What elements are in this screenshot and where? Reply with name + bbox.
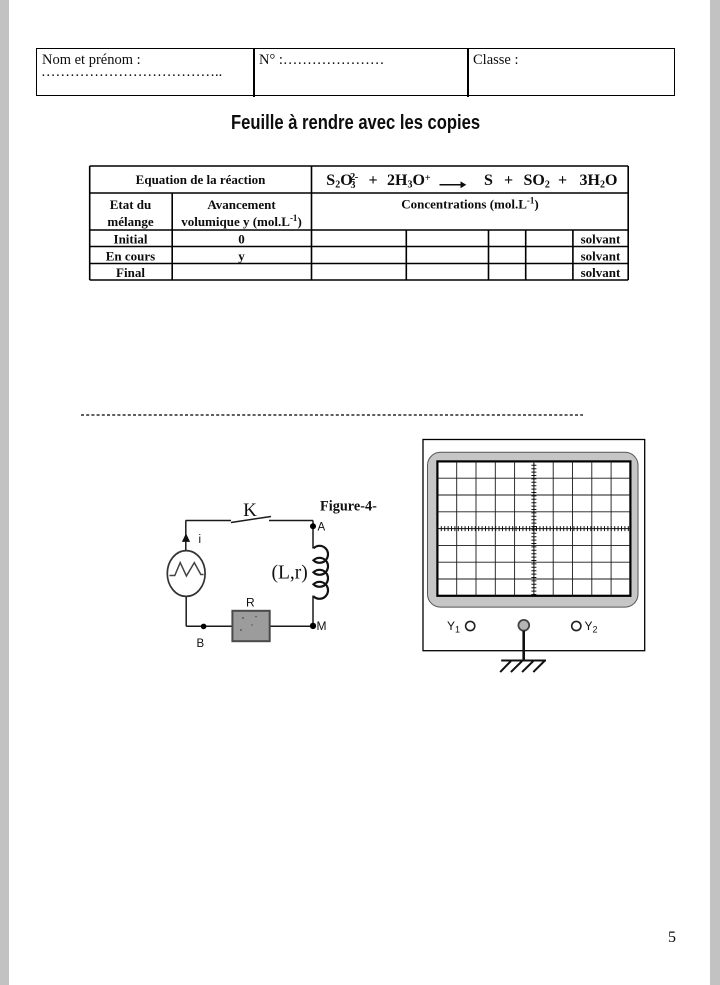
- svg-text:i: i: [199, 534, 202, 546]
- svg-text:solvant: solvant: [581, 232, 621, 247]
- svg-text:K: K: [243, 500, 257, 521]
- svg-text:R: R: [246, 596, 255, 610]
- svg-text:y: y: [238, 249, 245, 264]
- svg-text:Avancement: Avancement: [207, 197, 276, 212]
- svg-text:(L,r): (L,r): [272, 563, 308, 584]
- svg-text:Initial: Initial: [114, 232, 148, 247]
- svg-text:Concentrations (mol.L-1): Concentrations (mol.L-1): [401, 196, 539, 212]
- svg-text:En cours: En cours: [106, 249, 155, 264]
- svg-text:A: A: [318, 522, 326, 534]
- svg-text:solvant: solvant: [581, 265, 621, 280]
- svg-text:Equation de la réaction: Equation de la réaction: [136, 172, 266, 187]
- svg-text:volumique y (mol.L-1): volumique y (mol.L-1): [181, 213, 302, 229]
- svg-text:mélange: mélange: [107, 214, 153, 229]
- svg-text:0: 0: [238, 232, 245, 247]
- svg-text:Figure-4-: Figure-4-: [320, 499, 377, 515]
- svg-text:solvant: solvant: [581, 249, 621, 264]
- svg-text:Final: Final: [116, 265, 145, 280]
- svg-text:Etat du: Etat du: [110, 197, 152, 212]
- svg-text:M: M: [317, 619, 327, 633]
- svg-text:B: B: [197, 638, 205, 650]
